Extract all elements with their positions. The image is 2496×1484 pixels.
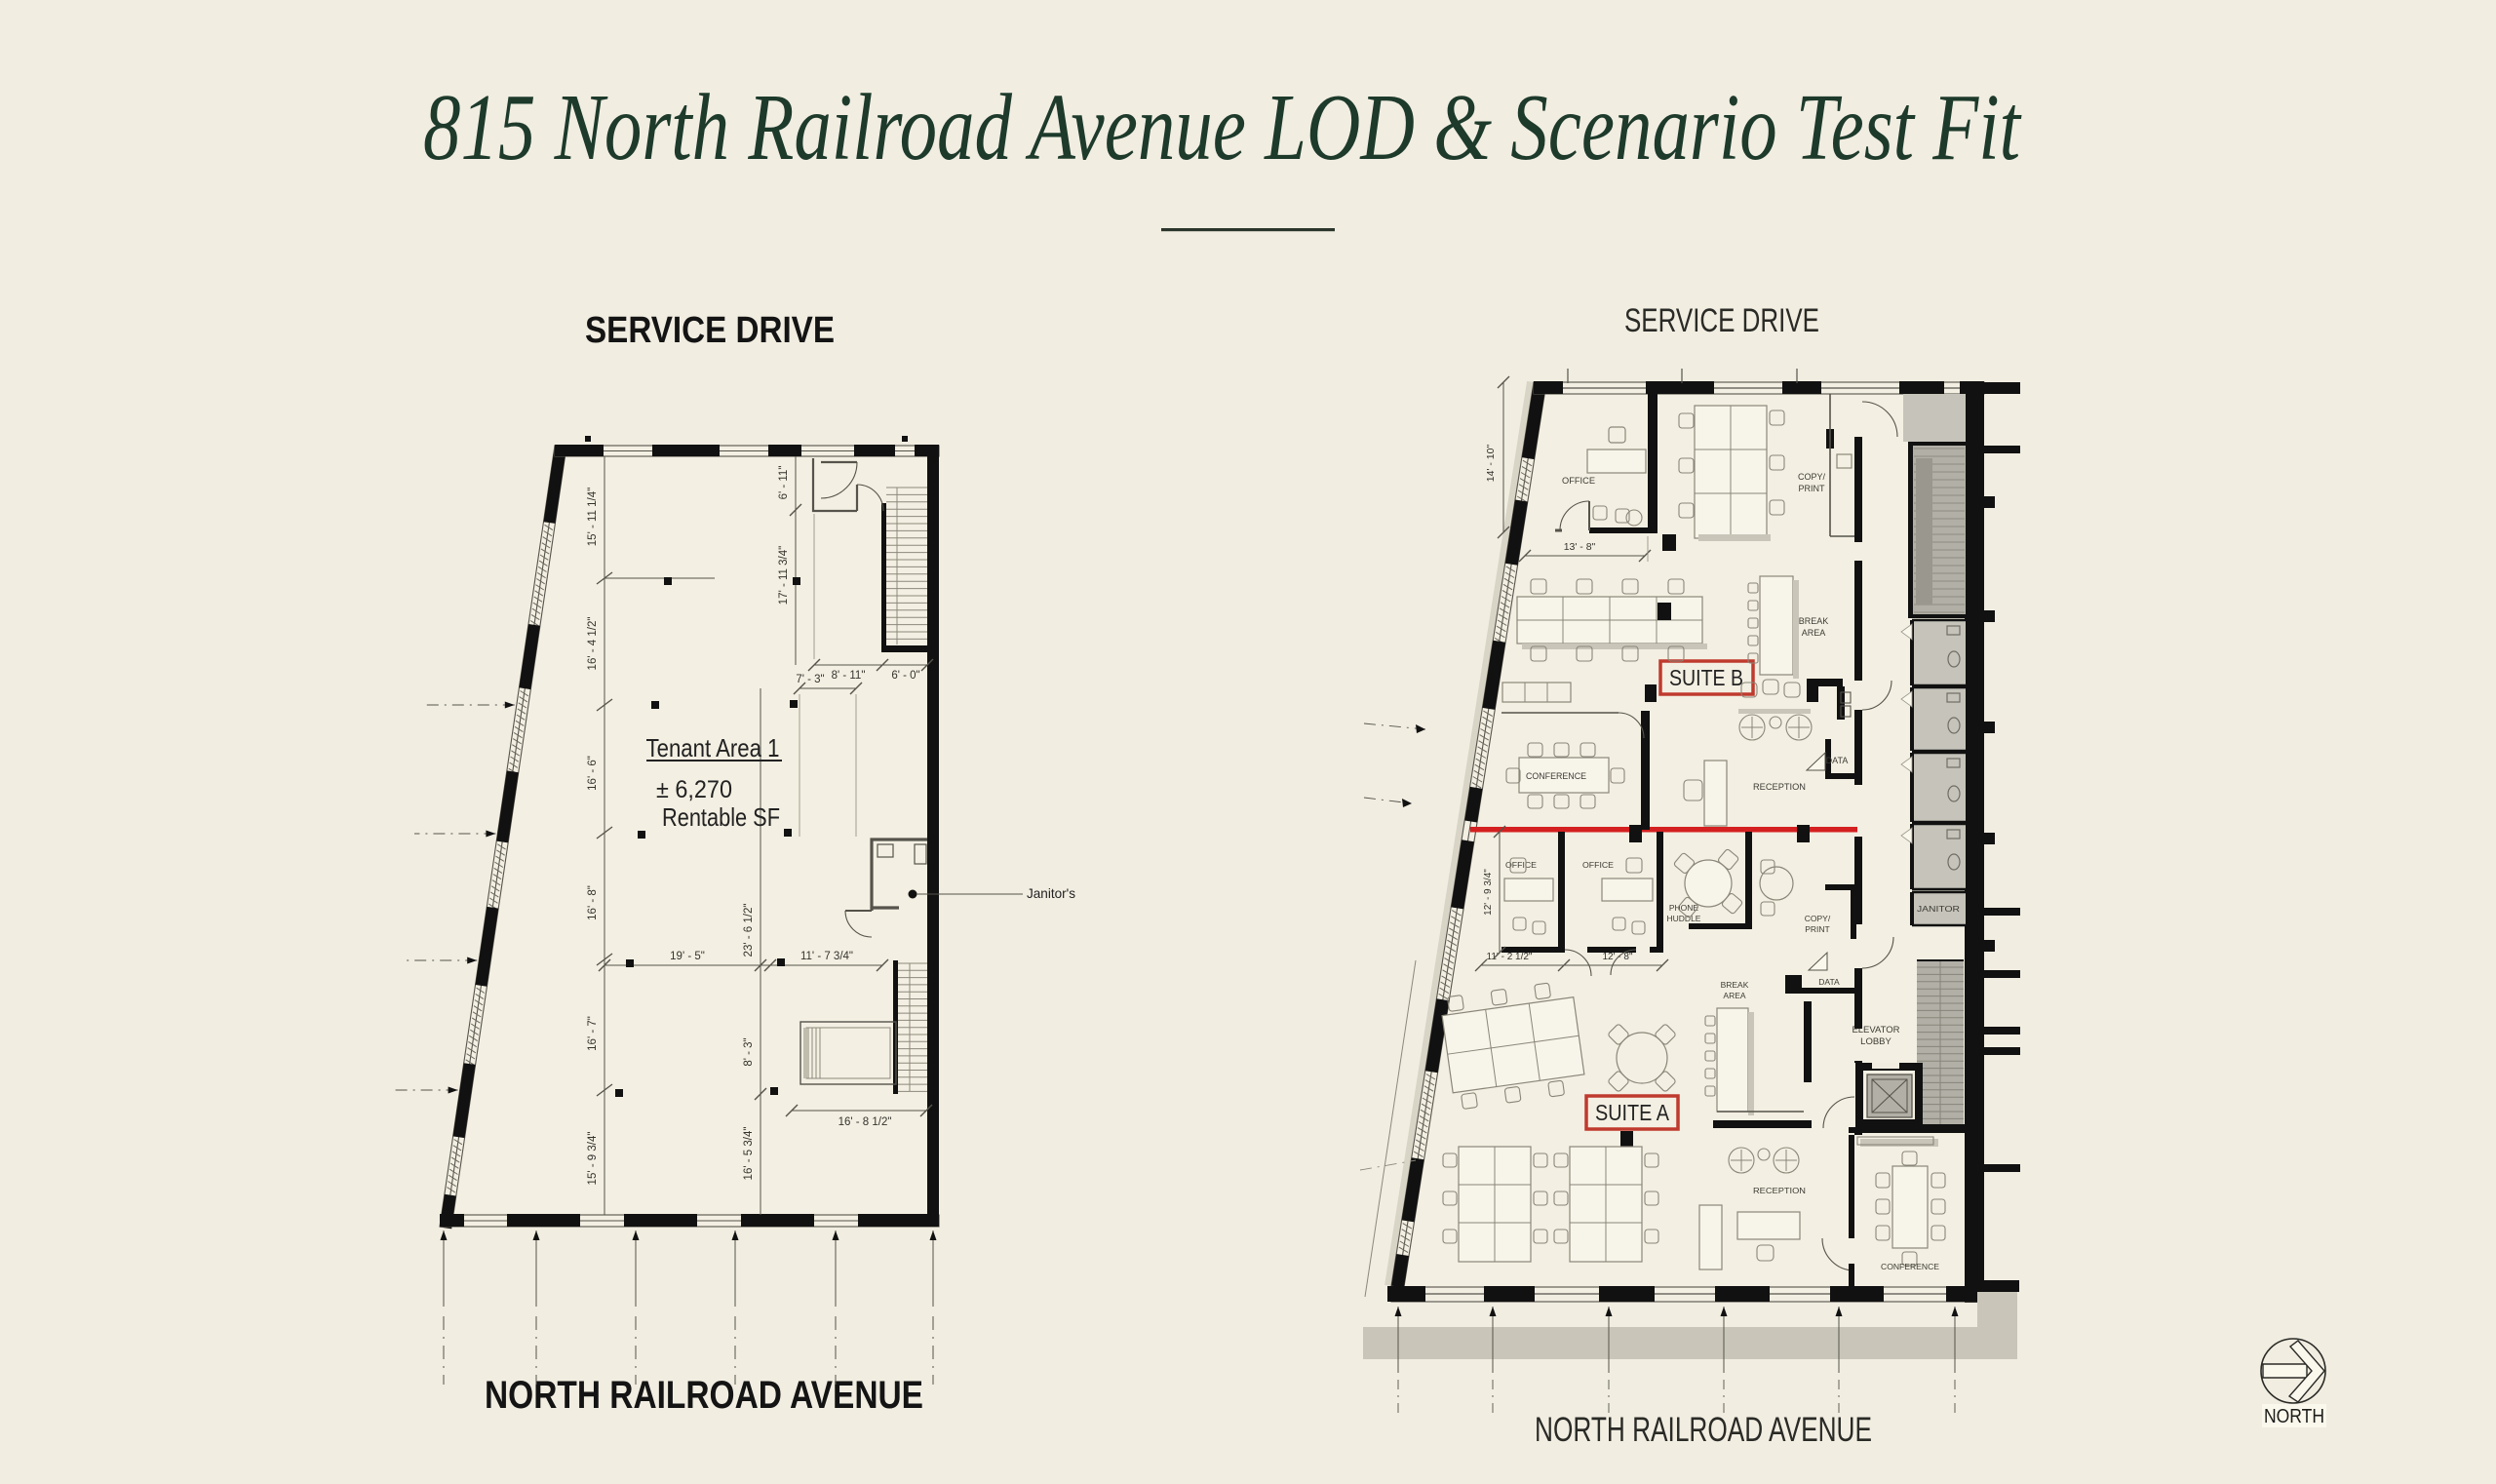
- svg-text:6' - 0": 6' - 0": [891, 670, 919, 682]
- svg-text:LOBBY: LOBBY: [1860, 1036, 1891, 1047]
- svg-text:Janitor's: Janitor's: [1027, 885, 1075, 901]
- svg-text:SUITE A: SUITE A: [1595, 1100, 1670, 1125]
- svg-text:16' - 7": 16' - 7": [587, 1016, 599, 1051]
- svg-text:8' - 3": 8' - 3": [743, 1037, 755, 1066]
- svg-text:PRINT: PRINT: [1799, 484, 1826, 493]
- svg-text:CONFERENCE: CONFERENCE: [1881, 1262, 1939, 1271]
- svg-text:SERVICE DRIVE: SERVICE DRIVE: [585, 310, 835, 351]
- svg-text:8' - 11": 8' - 11": [832, 670, 866, 682]
- svg-text:BREAK: BREAK: [1799, 616, 1829, 626]
- svg-text:7' - 3": 7' - 3": [796, 674, 824, 685]
- svg-text:15' - 9 3/4": 15' - 9 3/4": [587, 1132, 599, 1186]
- svg-text:13' - 8": 13' - 8": [1564, 541, 1596, 553]
- svg-text:± 6,270: ± 6,270: [656, 776, 732, 803]
- svg-text:Rentable SF: Rentable SF: [662, 802, 780, 832]
- svg-text:23' - 6 1/2": 23' - 6 1/2": [743, 904, 755, 957]
- svg-text:BREAK: BREAK: [1721, 980, 1749, 990]
- svg-text:SUITE B: SUITE B: [1669, 665, 1743, 690]
- svg-text:16' - 4 1/2": 16' - 4 1/2": [587, 617, 599, 671]
- svg-text:17' - 11 3/4": 17' - 11 3/4": [778, 546, 790, 605]
- svg-text:HUDDLE: HUDDLE: [1667, 914, 1701, 923]
- svg-text:11' - 7 3/4": 11' - 7 3/4": [800, 951, 853, 962]
- svg-text:Tenant Area 1: Tenant Area 1: [646, 733, 780, 762]
- svg-text:COPY/: COPY/: [1805, 914, 1831, 923]
- svg-text:CONFERENCE: CONFERENCE: [1526, 771, 1586, 781]
- svg-text:OFFICE: OFFICE: [1562, 476, 1595, 486]
- svg-text:15' - 11 1/4": 15' - 11 1/4": [587, 488, 599, 546]
- svg-text:12' - 8": 12' - 8": [1602, 952, 1632, 962]
- svg-text:RECEPTION: RECEPTION: [1753, 1186, 1806, 1195]
- svg-text:16' - 8 1/2": 16' - 8 1/2": [838, 1116, 892, 1128]
- svg-text:16' - 8": 16' - 8": [587, 885, 599, 920]
- svg-text:DATA: DATA: [1826, 756, 1849, 765]
- svg-text:11' - 2 1/2": 11' - 2 1/2": [1487, 952, 1533, 962]
- svg-text:OFFICE: OFFICE: [1582, 860, 1614, 870]
- svg-text:14' - 10": 14' - 10": [1485, 445, 1497, 483]
- svg-text:NORTH RAILROAD AVENUE: NORTH RAILROAD AVENUE: [485, 1374, 923, 1417]
- svg-text:16' - 5 3/4": 16' - 5 3/4": [743, 1127, 755, 1181]
- svg-text:NORTH RAILROAD AVENUE: NORTH RAILROAD AVENUE: [1535, 1411, 1872, 1449]
- svg-text:12' - 9 3/4": 12' - 9 3/4": [1483, 869, 1494, 916]
- svg-text:RECEPTION: RECEPTION: [1753, 782, 1806, 792]
- svg-text:815 North Railroad Avenue LOD: 815 North Railroad Avenue LOD & Scenario…: [423, 75, 2022, 179]
- svg-text:19' - 5": 19' - 5": [670, 951, 705, 962]
- svg-text:PRINT: PRINT: [1805, 924, 1830, 934]
- svg-text:AREA: AREA: [1802, 628, 1826, 638]
- svg-text:NORTH: NORTH: [2264, 1406, 2324, 1427]
- svg-text:COPY/: COPY/: [1798, 472, 1826, 482]
- svg-text:DATA: DATA: [1818, 977, 1840, 987]
- svg-text:JANITOR: JANITOR: [1917, 904, 1960, 914]
- svg-text:16' - 6": 16' - 6": [587, 756, 599, 791]
- svg-text:AREA: AREA: [1723, 991, 1745, 1000]
- svg-text:SERVICE DRIVE: SERVICE DRIVE: [1624, 302, 1819, 339]
- svg-text:6' - 11": 6' - 11": [778, 466, 790, 500]
